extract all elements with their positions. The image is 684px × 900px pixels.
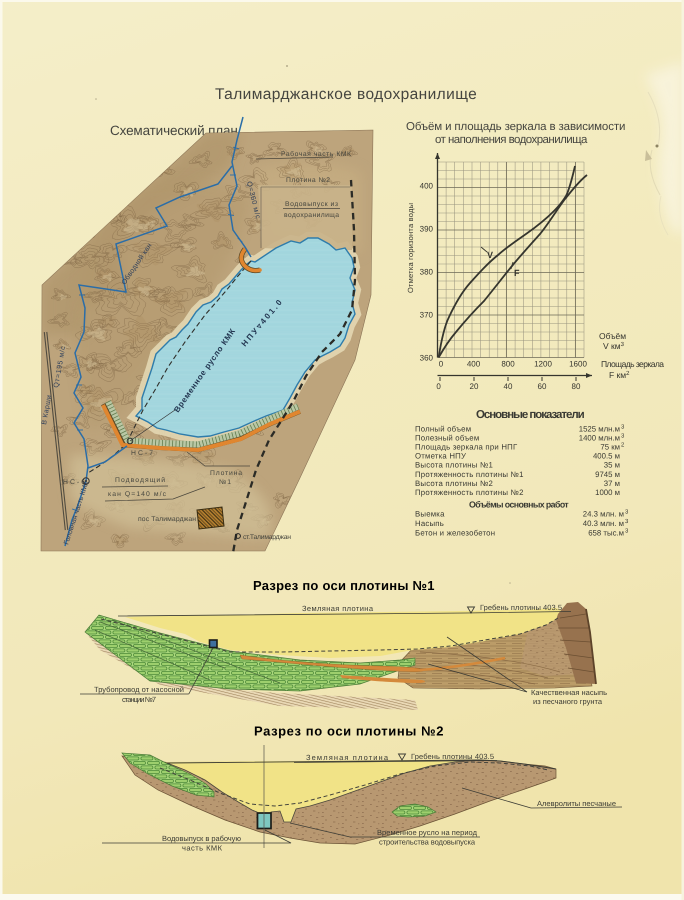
svg-text:№1: №1	[219, 479, 231, 486]
svg-text:Водовыпуск в рабочую: Водовыпуск в рабочую	[162, 834, 241, 843]
svg-text:F: F	[514, 268, 520, 278]
svg-text:40.3 млн. м: 40.3 млн. м	[583, 519, 624, 528]
svg-text:Талимарджанское водохранилище: Талимарджанское водохранилище	[215, 86, 479, 103]
svg-text:Земляная плотина: Земляная плотина	[302, 604, 374, 613]
svg-text:Высота плотины №1: Высота плотины №1	[415, 461, 493, 470]
svg-text:40: 40	[504, 382, 513, 391]
svg-text:из песчаного грунта: из песчаного грунта	[533, 697, 603, 706]
svg-text:360: 360	[420, 354, 434, 363]
svg-text:Гребень плотины 403.5: Гребень плотины 403.5	[480, 603, 562, 612]
svg-text:Разрез по оси плотины №1: Разрез по оси плотины №1	[253, 578, 435, 593]
svg-text:Насыпь: Насыпь	[415, 519, 444, 528]
svg-text:37 м: 37 м	[604, 479, 620, 488]
svg-text:400: 400	[467, 360, 481, 369]
svg-text:НС-7: НС-7	[131, 450, 153, 457]
svg-text:кан Q=140 м/с: кан Q=140 м/с	[108, 491, 167, 498]
svg-text:400.5 м: 400.5 м	[593, 452, 620, 461]
svg-text:Рабочая часть КМК: Рабочая часть КМК	[281, 151, 351, 158]
svg-text:Основные показатели: Основные показатели	[476, 409, 586, 421]
svg-text:0: 0	[436, 382, 441, 391]
svg-text:Подводящий: Подводящий	[115, 476, 165, 484]
svg-text:75 км: 75 км	[600, 443, 620, 452]
svg-text:Качественная насыпь: Качественная насыпь	[531, 688, 607, 697]
svg-text:Водовыпуск из: Водовыпуск из	[285, 201, 338, 208]
svg-text:658 тыс.м: 658 тыс.м	[588, 529, 624, 538]
svg-text:1600: 1600	[569, 360, 587, 369]
svg-text:часть КМК: часть КМК	[182, 844, 223, 853]
svg-text:Плотина: Плотина	[210, 470, 242, 477]
svg-text:0: 0	[439, 360, 444, 369]
svg-text:Площадь зеркала: Площадь зеркала	[601, 359, 664, 369]
svg-text:400: 400	[420, 182, 434, 191]
svg-text:станции №7: станции №7	[122, 695, 156, 704]
svg-text:пос Талимарджан: пос Талимарджан	[138, 516, 196, 523]
svg-text:800: 800	[501, 360, 515, 369]
svg-text:Земляная плотина: Земляная плотина	[306, 753, 389, 762]
svg-text:Разрез по оси плотины №2: Разрез по оси плотины №2	[254, 724, 444, 739]
svg-text:Объёмы основных работ: Объёмы основных работ	[469, 500, 569, 510]
svg-text:Протяженность плотины №2: Протяженность плотины №2	[415, 488, 524, 497]
svg-text:1200: 1200	[534, 360, 552, 369]
svg-text:370: 370	[420, 311, 434, 320]
svg-text:Полезный объем: Полезный объем	[415, 434, 479, 443]
svg-text:Гребень плотины 403.5: Гребень плотины 403.5	[411, 752, 494, 761]
svg-text:ст.Талимарджан: ст.Талимарджан	[243, 534, 291, 541]
svg-text:24.3 млн. м: 24.3 млн. м	[583, 510, 624, 519]
svg-text:Протяженность плотины №1: Протяженность плотины №1	[415, 470, 524, 479]
svg-text:строительства водовыпуска: строительства водовыпуска	[379, 838, 476, 847]
svg-text:20: 20	[470, 382, 479, 391]
svg-text:80: 80	[572, 382, 581, 391]
svg-text:Отметка НПУ: Отметка НПУ	[415, 452, 466, 461]
svg-text:1525 млн.м: 1525 млн.м	[579, 425, 620, 434]
svg-text:Объём и площадь зеркала в зави: Объём и площадь зеркала в зависимости	[406, 121, 626, 133]
svg-text:Объём: Объём	[599, 331, 626, 341]
svg-text:35 м: 35 м	[604, 461, 620, 470]
svg-text:Алевролиты песчаные: Алевролиты песчаные	[537, 799, 616, 808]
svg-text:1000 м: 1000 м	[595, 488, 620, 497]
svg-text:Площадь зеркала при НПГ: Площадь зеркала при НПГ	[415, 443, 518, 452]
svg-text:водохранилища: водохранилища	[284, 212, 339, 219]
svg-text:Бетон и железобетон: Бетон и железобетон	[415, 529, 495, 538]
svg-text:Отметка горизонта воды: Отметка горизонта воды	[406, 203, 415, 293]
svg-text:380: 380	[420, 268, 434, 277]
svg-text:1400 млн.м: 1400 млн.м	[579, 434, 620, 443]
svg-text:Полный объем: Полный объем	[415, 425, 471, 434]
svg-text:Плотина №2: Плотина №2	[286, 177, 330, 184]
svg-text:Высота плотины №2: Высота плотины №2	[415, 479, 493, 488]
svg-text:60: 60	[538, 382, 547, 391]
svg-text:Трубопровод от насосной: Трубопровод от насосной	[94, 685, 184, 694]
svg-text:V: V	[487, 250, 493, 260]
svg-text:390: 390	[420, 225, 434, 234]
svg-text:Временное русло на период: Временное русло на период	[377, 828, 478, 837]
svg-text:Выемка: Выемка	[415, 510, 445, 519]
svg-text:от наполнения водохранилища: от наполнения водохранилища	[435, 134, 588, 146]
svg-text:9745 м: 9745 м	[595, 470, 620, 479]
svg-text:НС-6: НС-6	[63, 479, 85, 486]
